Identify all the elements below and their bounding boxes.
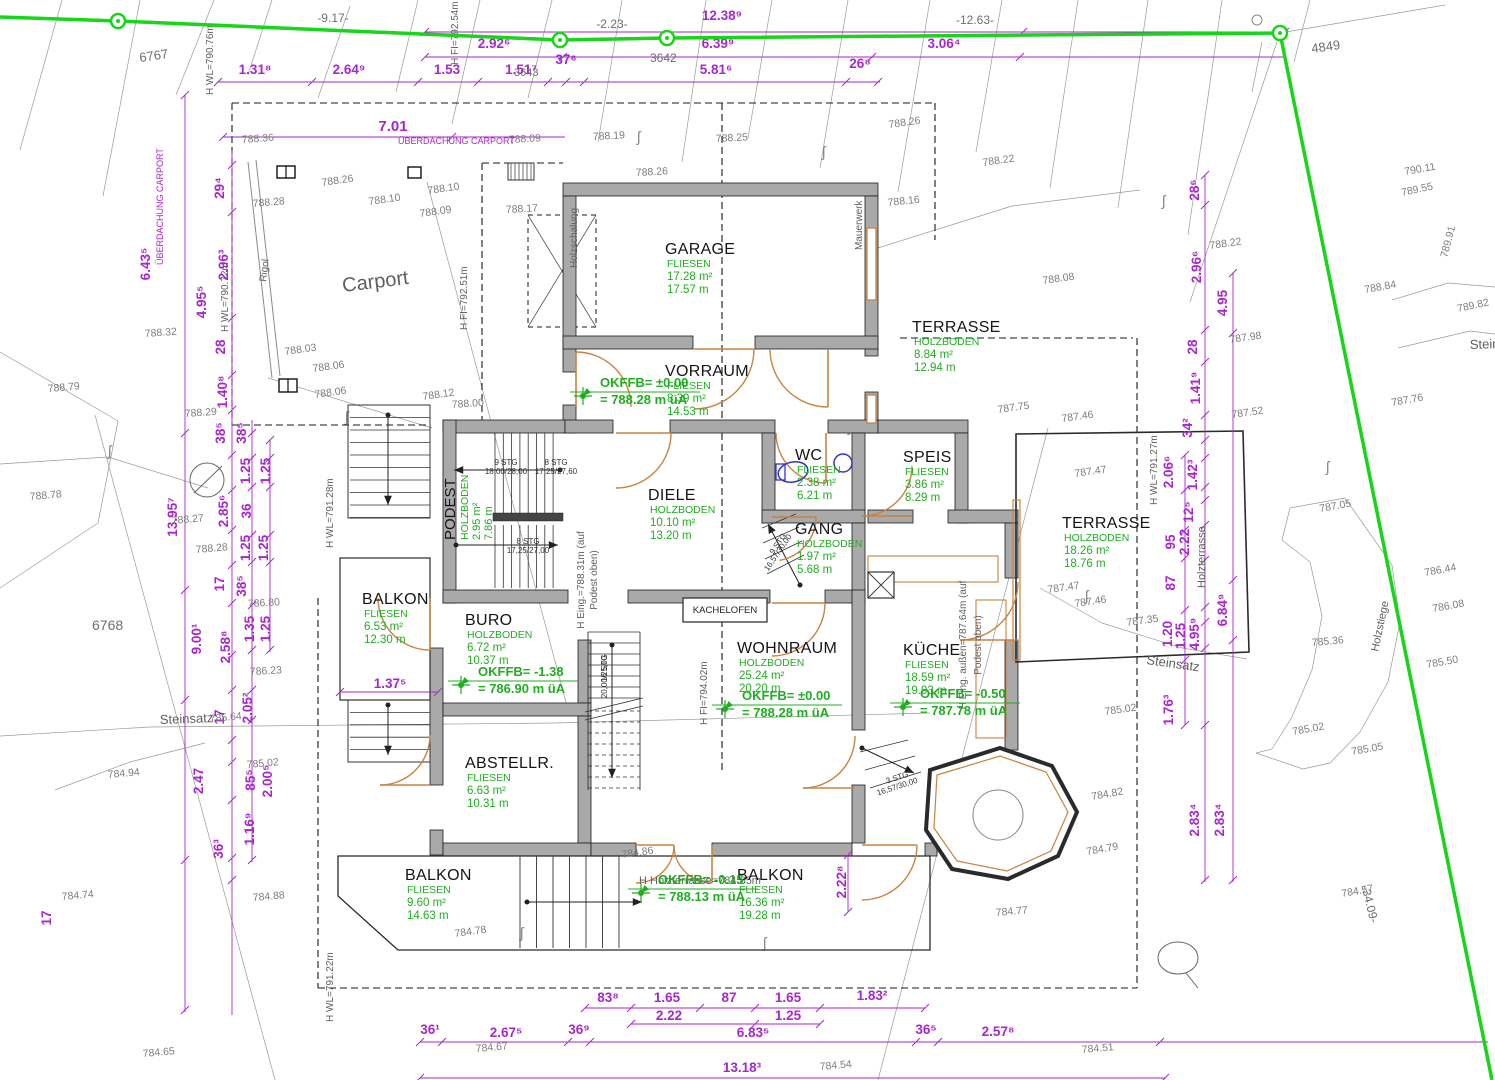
contour-label: 786.80: [248, 596, 281, 610]
stair-arrow-tail: [386, 413, 391, 418]
contour-label: 790.11: [1403, 161, 1436, 178]
room-area: 2.38 m²: [797, 477, 836, 489]
annotation-label: Rigol: [258, 258, 272, 282]
dimension-label: 36⁵: [915, 1022, 936, 1037]
stair-arrow-tail: [610, 643, 615, 648]
dimension-label: 3.06⁴: [928, 36, 961, 51]
dimension-label: 85⁵: [243, 769, 258, 790]
terrain-line: [1282, 540, 1310, 562]
wc-cistern: [776, 464, 785, 480]
dimension-label: 1.40⁸: [215, 376, 230, 409]
parcel-label: 6767: [138, 46, 169, 65]
dimension-label: 13.18³: [723, 1060, 762, 1075]
wall: [430, 830, 443, 855]
contour-label: 787.47: [1047, 580, 1081, 596]
wall: [443, 843, 591, 856]
annotation-label: Holzstiege: [1369, 600, 1391, 653]
contour-label: 788.06: [314, 385, 348, 401]
terrain-line: [1282, 508, 1290, 540]
room-floor: HOLZBODEN: [797, 538, 862, 550]
contour-label: 785.50: [1425, 654, 1459, 671]
wall: [955, 433, 968, 523]
dimension-label: 1.25: [775, 1008, 802, 1023]
room-area: 2.95 m²: [471, 502, 483, 540]
dimension-label: 87: [1163, 575, 1178, 590]
annotation-label: H FI=792.54m: [450, 1, 461, 65]
break-symbol: ʃ: [821, 144, 827, 161]
dimension-label: 36: [239, 503, 254, 519]
dimension-label: 1.65: [654, 990, 681, 1005]
dimension-label: 28: [1185, 339, 1200, 355]
room-name: ABSTELLR.: [465, 755, 554, 772]
room-floor: HOLZBODEN: [467, 629, 532, 641]
terrain-line: [1256, 753, 1303, 769]
room-name: SPEIS: [903, 449, 952, 466]
tree-line: [1186, 973, 1198, 988]
stair-note: 20,00/25,00: [600, 655, 609, 698]
annotation-label: Holzschalung: [569, 208, 580, 268]
contour-label: 788.22: [982, 153, 1016, 169]
contour-label: 784.67: [475, 1040, 508, 1055]
room-area: 8.84 m²: [914, 349, 953, 361]
dimension-label: 1.25: [256, 534, 271, 561]
terrain-line: [1292, 670, 1312, 717]
terrain-line: [1050, 0, 1078, 188]
stair-note: 17,25/27,60: [535, 467, 578, 476]
level-mark-label: OKFFB= ±0.00: [600, 375, 688, 390]
dimension-label: 6.84⁹: [1215, 594, 1230, 627]
dimension-label: 2.57⁸: [982, 1024, 1015, 1039]
contour-label: 788.00: [451, 397, 484, 411]
annotation-label: Holzterrasse: [1196, 526, 1208, 588]
contour-label: 784.65: [142, 1045, 175, 1060]
annotation-label: H FI=792.51m: [459, 266, 470, 330]
window: [867, 228, 876, 300]
shaft-box: [408, 167, 421, 178]
wall: [430, 648, 443, 785]
contour-label: 788.26: [888, 115, 922, 131]
room-floor: FLIESEN: [905, 466, 949, 478]
contour-label: 784.51: [1081, 1041, 1114, 1056]
dimension-label: 2.96⁶: [1189, 251, 1204, 284]
door-swing-arc: [616, 433, 671, 488]
dimension-label: 1.42³: [1185, 459, 1200, 490]
terrain-line: [1252, 42, 1262, 92]
room-floor: FLIESEN: [407, 884, 451, 896]
contour-label: 788.06: [312, 359, 346, 375]
room-area: 17.28 m²: [667, 271, 713, 283]
contour-label: 787.05: [1318, 498, 1352, 515]
contour-label: 784.77: [995, 904, 1028, 919]
survey-point: [1252, 15, 1262, 25]
room-area: 18.26 m²: [1064, 545, 1110, 557]
contour-label: 784.54: [819, 1058, 852, 1073]
break-symbol: ʃ: [1325, 459, 1331, 476]
contour-label: 786.08: [1431, 598, 1465, 615]
wall: [852, 590, 865, 730]
dimension-label: 2.58⁸: [218, 631, 233, 664]
terrain-line: [1470, 331, 1495, 334]
annotation-label: Steinsatz: [160, 710, 214, 727]
dimension-label: 38⁵: [234, 422, 249, 443]
dimension-label: 17: [39, 910, 54, 925]
bay-window-outline: [926, 748, 1077, 879]
stair-note: 17,25/27,00: [507, 546, 550, 555]
level-mark-label: OKFFB= ±0.00: [742, 688, 830, 703]
room-floor: HOLZBODEN: [650, 504, 715, 516]
survey-distance-label: -9.17-: [317, 11, 348, 25]
survey-distance-label: -34.09-: [1358, 884, 1381, 924]
room-name: BALKON: [362, 591, 429, 608]
contour-label: 784.78: [454, 924, 488, 940]
room-floor: FLIESEN: [739, 884, 783, 896]
contour-label: 785.36: [1311, 634, 1344, 649]
room-perimeter: 17.57 m: [667, 284, 709, 296]
dimension-label: 26⁸: [849, 56, 870, 71]
contour-label: 788.78: [29, 488, 62, 503]
contour-label: 788.16: [887, 194, 920, 209]
dimension-label: 7.01: [378, 118, 407, 135]
contour-label: 788.17: [506, 202, 539, 216]
level-mark-elevation: = 788.28 m üA: [742, 705, 830, 720]
dimension-label: 2.64⁹: [333, 62, 366, 77]
room-name: PODEST: [442, 478, 459, 540]
site-plan: ʃʃʃʃʃʃʃʃʃʃKACHELOFEN12.38⁹2.92⁶6.39⁹3.06…: [0, 0, 1495, 1080]
dimension-label: 2.67⁵: [490, 1025, 523, 1040]
survey-distance-label: -2.23-: [596, 17, 627, 31]
contour-label: 788.19: [593, 129, 626, 143]
dimension-label: 1.25: [258, 615, 273, 642]
terrain-line: [528, 0, 552, 98]
room-floor: FLIESEN: [905, 659, 949, 671]
dimension-label: 6.83⁵: [737, 1025, 770, 1040]
dimension-label: 1.83²: [857, 988, 888, 1003]
wall: [443, 590, 568, 603]
contour-label: 788.03: [284, 342, 318, 358]
dimension-label: 36¹: [420, 1022, 440, 1037]
annotation-label: H FI=794.02m: [699, 661, 710, 725]
room-perimeter: 14.53 m: [667, 406, 709, 418]
dimension-label: 1.76³: [1161, 694, 1176, 725]
contour-label: 788.09: [419, 204, 453, 220]
terrain-line: [0, 457, 108, 464]
dimension-label: 38⁵: [234, 575, 249, 596]
contour-label: 787.52: [1231, 405, 1265, 421]
contour-label: 788.10: [368, 192, 402, 208]
dimension-label: 4.95: [1215, 289, 1230, 316]
uberdachung-label: ÜBERDACHUNG CARPORT: [398, 136, 515, 146]
wall: [443, 703, 591, 716]
dimension-label: 36³: [211, 839, 226, 859]
dimension-label: 38⁵: [213, 422, 228, 443]
boundary-point-center: [558, 38, 562, 42]
boundary-point-center: [1278, 31, 1282, 35]
survey-distance-label: -12.63-: [956, 13, 994, 27]
room-perimeter: 8.29 m: [905, 492, 940, 504]
annotation-label: Steinsatz: [1146, 652, 1201, 674]
terrain-line: [396, 0, 418, 92]
stair-break: [585, 698, 643, 712]
level-mark-label: OKFFB= -0.50: [920, 686, 1006, 701]
dimension-label: 12.38⁹: [702, 8, 742, 23]
level-mark-elevation: = 787.78 m üA: [920, 703, 1008, 718]
contour-label: 784.88: [252, 889, 285, 904]
annotation-label: H WL=791.22m: [325, 952, 336, 1022]
stair-arrow-tail: [798, 583, 803, 588]
room-area: 3.86 m²: [905, 479, 944, 491]
door-swing-arc: [862, 845, 917, 900]
contour-label: 788.36: [241, 132, 274, 146]
room-area: 10.10 m²: [650, 517, 696, 529]
wall: [948, 510, 1018, 523]
terrain-line: [1294, 0, 1310, 62]
room-name: KÜCHE: [903, 641, 961, 659]
door-swing-arc: [770, 349, 828, 407]
wall: [762, 433, 775, 523]
parcel-label: 4849: [1310, 37, 1341, 56]
door-swing-arc: [803, 736, 855, 788]
contour-label: 788.22: [1209, 236, 1243, 252]
room-perimeter: 12.30 m: [364, 634, 406, 646]
terrain-line: [1012, 190, 1140, 206]
terrain-line: [1118, 0, 1148, 208]
site-plan-svg: ʃʃʃʃʃʃʃʃʃʃKACHELOFEN12.38⁹2.92⁶6.39⁹3.06…: [0, 0, 1495, 1080]
wall: [878, 420, 968, 433]
dimension-label: 2.83⁴: [1187, 804, 1202, 837]
room-name: GANG: [795, 521, 843, 538]
room-area: 25.24 m²: [739, 670, 785, 682]
stair-arrow-head: [384, 746, 392, 755]
wall: [578, 716, 591, 843]
boundary-point-center: [665, 36, 669, 40]
room-floor: FLIESEN: [364, 608, 408, 620]
room-name: BALKON: [737, 867, 804, 884]
contour-label: 784.82: [1090, 786, 1124, 803]
stair-break: [585, 706, 643, 720]
contour-label: 784.94: [107, 766, 140, 781]
contour-label: 788.27: [171, 512, 204, 527]
room-name: DIELE: [648, 487, 696, 504]
parcel-label: 6768: [92, 617, 123, 633]
annotation-label: H WL=790.72m: [220, 262, 231, 332]
stair-landing-rail: [493, 513, 563, 521]
room-name: WOHNRAUM: [737, 640, 837, 657]
terrain-line: [1398, 331, 1470, 348]
annotation-label: Carport: [341, 267, 410, 297]
room-perimeter: 18.76 m: [1064, 558, 1106, 570]
dimension-label: 29⁴: [212, 177, 227, 199]
room-perimeter: 10.31 m: [467, 798, 509, 810]
dimension-label: 2.47: [191, 768, 206, 794]
tree-line: [194, 466, 222, 493]
dimension-label: 2.06⁶: [1161, 456, 1176, 489]
annotation-label: Mauerwerk: [854, 200, 865, 250]
dimension-label: 2.22⁸: [834, 866, 849, 899]
dimension-label: 2.05²: [240, 692, 255, 723]
contour-label: 788.29: [184, 406, 217, 420]
terrain-line: [0, 523, 98, 588]
stair-arrow-tail: [386, 703, 391, 708]
contour-label: 788.25: [716, 131, 749, 145]
terrain-line: [1448, 283, 1495, 287]
room-perimeter: 5.68 m: [797, 564, 832, 576]
room-perimeter: 13.20 m: [650, 530, 692, 542]
kachelofen-label: KACHELOFEN: [693, 605, 758, 616]
contour-label: 787.76: [1390, 392, 1424, 409]
level-mark-elevation: = 788.28 m üA: [600, 392, 688, 407]
exterior-stair-outline: [348, 700, 430, 762]
room-floor: HOLZBODEN: [914, 336, 979, 348]
level-mark-label: OKFFB= -0.15: [658, 872, 744, 887]
wall: [852, 433, 865, 523]
wall: [755, 336, 878, 349]
room-floor: FLIESEN: [667, 258, 711, 270]
contour-label: 787.47: [1074, 464, 1108, 480]
contour-label: 784.79: [1085, 841, 1119, 858]
contour-label: 788.28: [195, 541, 228, 556]
stair-note: 18,00/28,00: [485, 467, 528, 476]
terrain-line: [1256, 749, 1272, 753]
contour-label: 789.82: [1456, 296, 1490, 314]
tree-symbol: [1158, 942, 1198, 974]
stair-arrow-head: [768, 524, 776, 534]
contour-label: 788.10: [427, 181, 461, 197]
room-floor: HOLZBODEN: [739, 657, 804, 669]
room-name: GARAGE: [665, 241, 735, 258]
window: [867, 395, 876, 423]
contour-label: 789.91: [1438, 224, 1458, 258]
dimension-label: 1.25: [238, 457, 253, 484]
parcel-label: 3643: [514, 67, 538, 79]
stair-arrow-tail: [525, 900, 530, 905]
contour-label: 788.79: [47, 380, 80, 395]
dimension-label: 17: [212, 576, 227, 591]
contour-label: 788.26: [636, 165, 669, 179]
dimension-label: 9.00¹: [189, 623, 204, 654]
contour-label: 785.02: [1291, 721, 1325, 738]
parcel-label: 3642: [650, 51, 677, 65]
terrain-line: [898, 0, 930, 192]
room-perimeter: 19.28 m: [739, 910, 781, 922]
annotation-label: H WL=791.28m: [325, 478, 336, 548]
floor-plan-canvas: ʃʃʃʃʃʃʃʃʃʃKACHELOFEN12.38⁹2.92⁶6.39⁹3.06…: [0, 0, 1495, 1080]
contour-label: 785.02: [1104, 702, 1138, 718]
contour-label: 788.12: [422, 387, 456, 403]
dimension-label: 37⁶: [555, 52, 576, 67]
contour-label: 788.32: [144, 326, 177, 340]
terrain-line: [20, 0, 62, 150]
terrain-line: [1392, 283, 1448, 300]
level-mark-label: OKFFB= -1.38: [478, 664, 564, 679]
contour-label: 789.55: [1400, 180, 1434, 198]
room-floor: HOLZBODEN: [1064, 532, 1129, 544]
stair-note: 8 STG: [544, 458, 567, 467]
terrain-line: [0, 727, 150, 736]
annotation-label: H WL=791.27m: [1149, 435, 1160, 505]
stair-arrow-tail: [454, 543, 459, 548]
stair-note: 8 STG: [516, 537, 539, 546]
room-area: 1.97 m²: [797, 551, 836, 563]
room-floor: HOLZBODEN: [459, 475, 471, 540]
hatched-strip: [508, 163, 534, 180]
break-symbol: ʃ: [344, 409, 350, 426]
room-area: 16.36 m²: [739, 897, 785, 909]
annotation-label: H Eing.=788.31m (auf: [576, 531, 587, 629]
room-perimeter: 14.63 m: [407, 910, 449, 922]
contour-label: 787.46: [1074, 594, 1108, 610]
break-symbol: ʃ: [1161, 193, 1167, 210]
room-area: 6.72 m²: [467, 642, 506, 654]
dimension-label: 4.95⁹: [1187, 618, 1202, 651]
dimension-label: 28: [213, 339, 228, 355]
room-name: TERRASSE: [1062, 515, 1151, 532]
contour-label: 788.08: [1042, 271, 1076, 287]
contour-label: 787.35: [1126, 613, 1160, 629]
dimension-label: 1.35: [242, 615, 257, 642]
dim-tick: [416, 1074, 424, 1080]
dimension-label: 36⁹: [568, 1022, 589, 1037]
dimension-label: 1.37⁵: [374, 676, 407, 691]
level-mark-elevation: = 788.13 m üA: [658, 889, 746, 904]
room-perimeter: 7.86 m: [483, 506, 495, 540]
terrain-line: [130, 743, 205, 762]
terrain-line: [748, 0, 772, 138]
wall: [852, 785, 865, 843]
dimension-label: 2.22: [1177, 529, 1192, 555]
contour-label: 786.23: [250, 664, 283, 678]
break-symbol: ʃ: [636, 129, 642, 146]
uberdachung-label: ÜBERDACHUNG CARPORT: [155, 148, 165, 265]
room-name: BALKON: [405, 867, 472, 884]
dimension-label: 1.16⁹: [242, 813, 257, 846]
dimension-label: 1.31⁸: [239, 62, 272, 77]
dimension-label: 95: [1163, 534, 1178, 550]
dimension-label: 87: [721, 990, 736, 1005]
room-area: 18.59 m²: [905, 672, 951, 684]
wall: [712, 843, 852, 856]
dimension-label: 2.85⁶: [216, 495, 231, 528]
boundary-point-center: [116, 19, 120, 23]
room-area: 9.60 m²: [407, 897, 446, 909]
contour-label: 785.05: [1350, 741, 1384, 758]
room-area: 6.53 m²: [364, 621, 403, 633]
wall: [825, 590, 855, 603]
dim-tick: [1161, 1074, 1169, 1080]
annotation-label: Steinsatz: [1470, 335, 1495, 352]
terrain-line: [878, 206, 1012, 248]
dimension-label: 34²: [1180, 418, 1195, 438]
wall: [563, 336, 693, 349]
dimension-label: 1.41⁹: [1188, 372, 1203, 405]
contour-label: 788.26: [321, 173, 355, 189]
contour-label: 785.64: [209, 710, 242, 725]
contour-label: 787.75: [997, 400, 1031, 416]
dimension-label: 2.83⁴: [1212, 804, 1227, 837]
room-area: 6.63 m²: [467, 785, 506, 797]
dimension-label: 6.43⁵: [138, 248, 153, 281]
contour-label: 786.44: [1423, 562, 1457, 579]
room-floor: FLIESEN: [467, 772, 511, 784]
terrain-line: [1310, 562, 1322, 616]
room-name: BURO: [465, 612, 512, 629]
room-perimeter: 6.21 m: [797, 490, 832, 502]
dimension-label: 83⁸: [597, 990, 618, 1005]
terrain-line: [1388, 622, 1400, 682]
stair-arrow-head: [384, 496, 392, 505]
wall: [670, 420, 775, 433]
level-mark-elevation: = 786.90 m üA: [478, 681, 566, 696]
dimension-label: 5.81⁶: [700, 62, 733, 77]
